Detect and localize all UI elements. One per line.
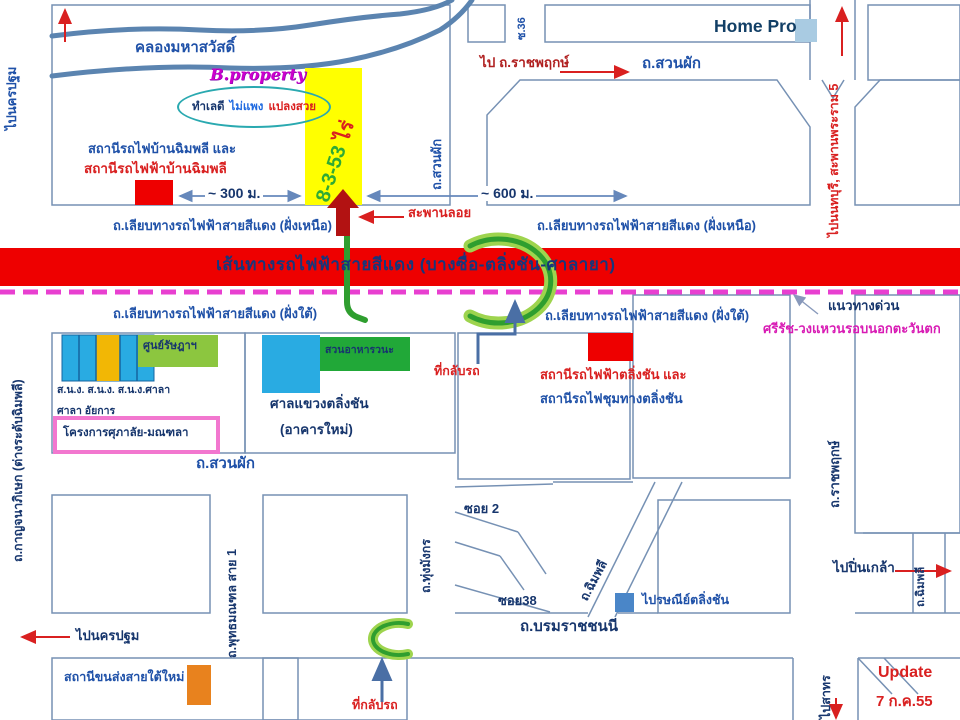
direction-pinklao: ไปปิ่นเกล้า bbox=[833, 561, 895, 576]
direction-ratchaphruek: ไป ถ.ราชพฤกษ์ bbox=[480, 56, 569, 71]
map-graphics bbox=[0, 0, 960, 720]
red-line-title: เส้นทางรถไฟฟ้าสายสีแดง (บางซื่อ-ตลิ่งชัน… bbox=[216, 256, 616, 275]
talingchan-station-label-2: สถานีรถไฟชุมทางตลิ่งชัน bbox=[540, 392, 683, 406]
court-label-2: (อาคารใหม่) bbox=[280, 423, 353, 438]
borommaratchachonnani-label: ถ.บรมราชชนนี bbox=[520, 619, 618, 636]
phutthamonthon1-road-label: ถ.พุทธมณฑล สาย 1 bbox=[226, 549, 240, 658]
expressway-label-1: แนวทางด่วน bbox=[828, 299, 899, 313]
railside-north-label-right: ถ.เลียบทางรถไฟฟ้าสายสีแดง (ฝั่งเหนือ) bbox=[537, 219, 756, 233]
court-building bbox=[262, 335, 320, 393]
block-sw2 bbox=[263, 495, 407, 613]
block-sw1 bbox=[52, 495, 210, 613]
homepro-marker bbox=[795, 19, 817, 42]
block-bus-terminal bbox=[52, 658, 298, 720]
suanphak-label-top: ถ.สวนผัก bbox=[642, 56, 701, 73]
block-top-right bbox=[868, 5, 960, 80]
restaurant-label: สวนอาหารวนะ bbox=[325, 345, 394, 357]
tagline-3: แปลงสวย bbox=[268, 101, 316, 114]
chimphli-station-label-2: สถานีรถไฟฟ้าบ้านฉิมพลี bbox=[84, 162, 227, 177]
soi38-label: ซอย38 bbox=[498, 594, 537, 608]
thungmangkon-road-label: ถ.ทุ่งมังกร bbox=[420, 539, 434, 593]
post-office-marker bbox=[615, 593, 634, 612]
ratchaphruek-road-label: ถ.ราชพฤกษ์ bbox=[828, 441, 842, 508]
bus-terminal-marker bbox=[187, 665, 211, 705]
govt-offices-label-2: ศาลา อัยการ bbox=[57, 406, 115, 418]
chimphli-road-label-vertical: ถ.ฉิมพลี bbox=[915, 567, 928, 607]
tagline-2: ไม่แพง bbox=[229, 101, 263, 114]
southern-bus-terminal-label: สถานีขนส่งสายใต้ใหม่ bbox=[64, 671, 184, 685]
footbridge-label: สะพานลอย bbox=[408, 206, 471, 220]
uturn-label-bottom: ที่กลับรถ bbox=[352, 699, 398, 713]
direction-sathorn: ไปสาทร bbox=[820, 675, 834, 719]
chimphli-station-label-1: สถานีรถไฟบ้านฉิมพลี และ bbox=[88, 142, 236, 156]
govt-offices-label-1: ส.น.ง. ส.น.ง. ส.น.ง.ศาลา bbox=[57, 385, 170, 397]
direction-nakhonpathom-north: ไปนครปฐม bbox=[5, 67, 19, 130]
soi36-label: ซ.36 bbox=[516, 17, 528, 40]
expressway-label-2: ศรีรัช-วงแหวนรอบนอกตะวันตก bbox=[763, 322, 941, 336]
block-east-top bbox=[855, 80, 960, 205]
distance-600m: ~ 600 ม. bbox=[478, 186, 536, 201]
uturn-label-mid: ที่กลับรถ bbox=[434, 365, 480, 379]
court-label-1: ศาลแขวงตลิ่งชัน bbox=[270, 397, 369, 412]
location-map: ไปนครปฐม คลองมหาสวัสดิ์ B.property ทำเลด… bbox=[0, 0, 960, 720]
arrow-expressway-pointer bbox=[794, 295, 818, 314]
soi2-label: ซอย 2 bbox=[464, 502, 499, 516]
direction-nakhonpathom-west: ไปนครปฐม bbox=[76, 629, 139, 643]
supalai-project-label: โครงการศุภาลัย-มณฑลา bbox=[63, 427, 189, 440]
railside-south-label-right: ถ.เลียบทางรถไฟฟ้าสายสีแดง (ฝั่งใต้) bbox=[545, 309, 749, 323]
tagline-oval: ทำเลดี ไม่แพง แปลงสวย bbox=[177, 86, 331, 128]
brand-label: B.property bbox=[210, 66, 306, 84]
govt-building-yellow bbox=[96, 335, 120, 381]
direction-nonthaburi: ไปนนทบุรี, สะพานพระราม 5 bbox=[828, 84, 842, 237]
talingchan-station-label-1: สถานีรถไฟฟ้าตลิ่งชัน และ bbox=[540, 368, 687, 382]
arrow-uturn-mid bbox=[478, 302, 515, 364]
homepro-label: Home Pro bbox=[714, 17, 797, 36]
ratsada-center-label: ศูนย์รัษฎาฯ bbox=[143, 340, 197, 352]
kanchanaphisek-road-label: ถ.กาญจนาภิเษก (ต่างระดับฉิมพลี) bbox=[12, 379, 26, 562]
block-top-small bbox=[468, 5, 505, 42]
talingchan-station-marker bbox=[588, 333, 633, 361]
chimphli-station-marker bbox=[135, 180, 173, 205]
suanphak-label-bottom: ถ.สวนผัก bbox=[196, 456, 255, 473]
canal-label: คลองมหาสวัสดิ์ bbox=[135, 40, 235, 57]
update-label: Update bbox=[878, 664, 932, 682]
distance-300m: ~ 300 ม. bbox=[205, 186, 263, 201]
suanphak-label-vertical: ถ.สวนผัก bbox=[430, 139, 444, 190]
railside-south-label-left: ถ.เลียบทางรถไฟฟ้าสายสีแดง (ฝั่งใต้) bbox=[113, 307, 317, 321]
update-date: 7 ก.ค.55 bbox=[876, 694, 933, 711]
tagline-1: ทำเลดี bbox=[192, 101, 224, 114]
railside-north-label-left: ถ.เลียบทางรถไฟฟ้าสายสีแดง (ฝั่งเหนือ) bbox=[113, 219, 332, 233]
post-office-label: ไปรษณีย์ตลิ่งชัน bbox=[642, 594, 729, 608]
